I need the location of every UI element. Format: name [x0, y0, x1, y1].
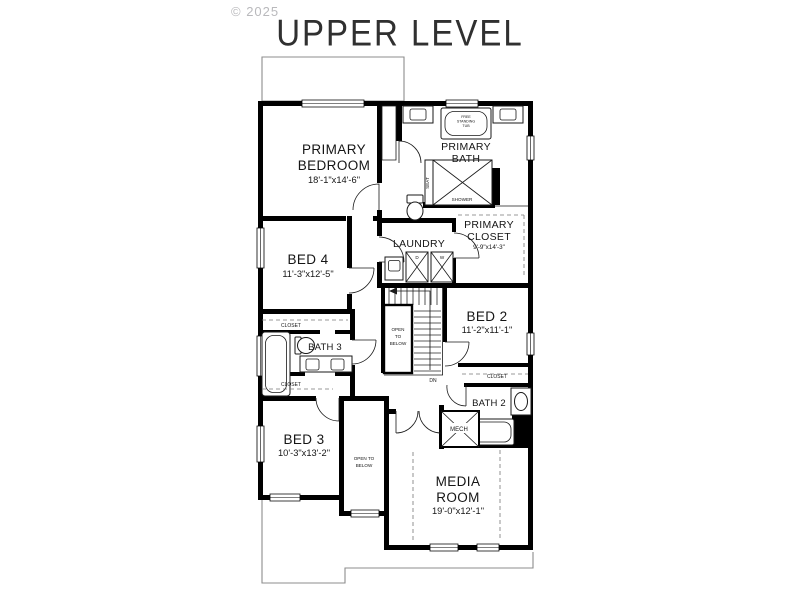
primary-closet-dims: 9'-9"x14'-3": [473, 244, 505, 251]
mech-label: MECH: [450, 427, 468, 433]
tub-label-3: TUB: [462, 124, 470, 128]
closet-label-bed2: CLOSET: [487, 374, 507, 380]
tub-label-2: STANDING: [457, 120, 476, 124]
deck-outline: [262, 57, 404, 101]
stair-open-below-3: BELOW: [390, 341, 407, 346]
stair-treads-lower: [414, 311, 441, 371]
bed4-label: BED 4: [287, 252, 328, 267]
washer-label: W: [440, 255, 445, 260]
stair-dn-label: DN: [429, 378, 437, 384]
primary-closet-label-1: PRIMARY: [464, 219, 514, 231]
bed2-dims: 11'-2"x11'-1": [462, 325, 513, 335]
primary-bedroom-label-2: BEDROOM: [298, 158, 371, 173]
seat-label: SEAT: [425, 177, 430, 189]
bed2-label: BED 2: [466, 309, 507, 324]
shower-label: SHOWER: [452, 197, 473, 202]
primary-bedroom-label-1: PRIMARY: [302, 142, 366, 157]
media-room-label-2: ROOM: [436, 490, 480, 505]
bed4-dims: 11'-3"x12'-5": [282, 269, 333, 279]
primary-closet-label-2: CLOSET: [467, 231, 511, 243]
bed3-dims: 10'-3"x13'-2": [278, 448, 330, 458]
closet-label-bath3-bottom: CLOSET: [281, 382, 301, 388]
linen-chase: [382, 106, 396, 160]
floor-plan: PRIMARY BEDROOM 18'-1"x14'-6" PRIMARY BA…: [0, 0, 800, 600]
stair-arrow-head: [389, 288, 397, 295]
bed3-label: BED 3: [283, 432, 324, 447]
vanity-right: [493, 106, 523, 123]
open-to-below-box: [384, 305, 412, 373]
laundry-label: LAUNDRY: [393, 238, 445, 250]
stair-open-below-1: OPEN: [391, 327, 404, 332]
primary-bath-label-2: BATH: [452, 153, 480, 165]
media-room-label-1: MEDIA: [436, 474, 481, 489]
hall-open-below-2: BELOW: [356, 463, 373, 468]
bath2-sink: [515, 393, 528, 411]
media-room-dims: 19'-0"x12'-1": [432, 506, 484, 516]
toilet-bowl-primary: [407, 202, 423, 220]
bath3-label: BATH 3: [308, 342, 342, 353]
lower-roof-outline: [262, 500, 533, 583]
primary-bedroom-dims: 18'-1"x14'-6": [308, 175, 360, 185]
closet-label-bath3-top: CLOSET: [281, 323, 301, 329]
hall-open-below-1: OPEN TO: [354, 456, 375, 461]
primary-bath-label-1: PRIMARY: [441, 141, 491, 153]
vanity-left: [403, 106, 433, 123]
bath2-label: BATH 2: [472, 398, 506, 409]
stair-open-below-2: TO: [395, 334, 402, 339]
tub-label-1: FREE: [461, 115, 471, 119]
